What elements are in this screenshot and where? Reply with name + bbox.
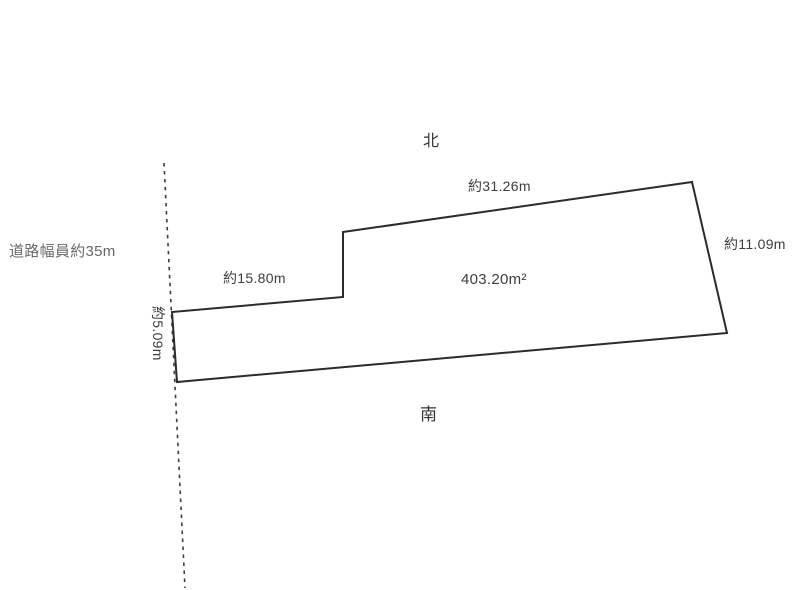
land-plot-diagram: 道路幅員約35m 北 南 約31.26m 約11.09m 約15.80m 約5.… bbox=[0, 0, 800, 590]
dimension-north-edge-label: 約31.26m bbox=[468, 178, 531, 195]
diagram-canvas bbox=[0, 0, 800, 590]
dimension-west-edge-label: 約5.09m bbox=[149, 306, 166, 361]
dimension-east-edge-label: 約11.09m bbox=[724, 236, 786, 253]
dimension-inner-west-edge-label: 約15.80m bbox=[223, 270, 286, 287]
compass-south-label: 南 bbox=[420, 405, 437, 425]
compass-north-label: 北 bbox=[423, 132, 439, 151]
road-width-label: 道路幅員約35m bbox=[9, 243, 116, 261]
plot-area-label: 403.20m² bbox=[461, 271, 527, 289]
